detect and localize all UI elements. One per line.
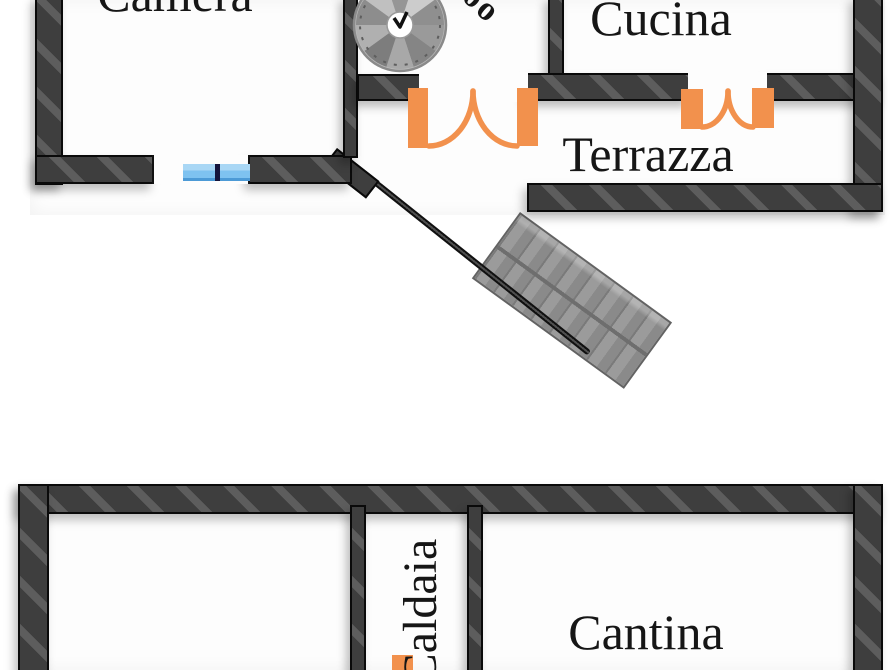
wall-lower-right xyxy=(853,484,883,670)
wall-lower-left xyxy=(18,484,49,670)
wall-lower-divider-right xyxy=(467,505,483,670)
window-mullion xyxy=(215,164,220,181)
wall-lower-top xyxy=(18,484,883,514)
spiral-staircase-icon xyxy=(352,0,448,74)
staircase xyxy=(472,212,672,389)
cucina-door-jamb-left xyxy=(681,89,703,129)
terrazza-door-jamb-left xyxy=(408,88,428,148)
cucina-door-jamb-right xyxy=(752,88,774,128)
floorplan-image: Camera Cucina Terrazza Cantina Caldaia o… xyxy=(0,0,893,670)
wall-terrazza-bottom xyxy=(527,183,883,212)
room-label-cantina: Cantina xyxy=(496,604,796,660)
room-label-caldaia: Caldaia xyxy=(393,512,449,670)
room-label-cucina: Cucina xyxy=(511,0,811,46)
wall-camera-bottom-left xyxy=(35,155,154,184)
wall-upper-right xyxy=(853,0,883,212)
wall-lower-divider-left xyxy=(350,505,366,670)
wall-camera-bottom-right xyxy=(248,155,352,184)
room-label-terrazza: Terrazza xyxy=(498,126,798,182)
room-label-camera: Camera xyxy=(25,0,325,22)
